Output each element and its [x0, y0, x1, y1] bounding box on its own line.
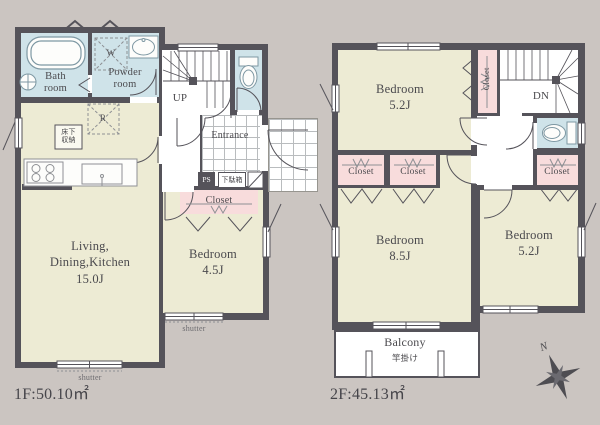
- shutter-label-ldk: shutter: [60, 373, 120, 382]
- room-bedroom-center-notch: [440, 155, 471, 190]
- balcony-label: Balcony: [360, 336, 450, 350]
- compass-icon: [527, 346, 589, 408]
- hall-2f: [477, 116, 533, 185]
- compass-north-label: N: [534, 339, 553, 356]
- bedroom-center-label: Bedroom8.5J: [355, 232, 445, 265]
- room-ldk: [21, 103, 159, 362]
- dn-label: DN: [526, 90, 556, 103]
- closet-north-label: Closet: [482, 54, 492, 104]
- bedroom-45-label: Bedroom4.5J: [173, 246, 253, 279]
- ps-label: PS: [198, 172, 215, 188]
- closet-b-label: Closet: [390, 167, 436, 178]
- floor2-area-label: 2F:45.13㎡: [330, 386, 480, 404]
- floorplan-canvas: Bathroom Powderroom UP Entrance PS 下駄箱 C…: [0, 0, 600, 425]
- room-toilet-2f: [537, 118, 578, 148]
- underfloor-storage-label: 床下収納: [56, 128, 81, 144]
- pole-hanger-label: 竿掛け: [360, 354, 450, 364]
- room-entrance: [200, 115, 262, 172]
- shutter-label-bedroom: shutter: [164, 324, 224, 333]
- powder-room-label: Powderroom: [95, 67, 155, 91]
- bathroom-label: Bathroom: [28, 71, 83, 95]
- stairs-2f: [500, 50, 578, 113]
- fridge-label: R: [95, 113, 111, 123]
- bedroom-north-label: Bedroom5.2J: [355, 81, 445, 114]
- room-toilet-1f: [235, 50, 262, 112]
- closet-1f-label: Closet: [184, 195, 254, 207]
- shoe-cabinet-label: 下駄箱: [218, 172, 246, 188]
- bedroom-east-label: Bedroom5.2J: [485, 227, 573, 260]
- ldk-label: Living,Dining,Kitchen15.0J: [30, 238, 150, 287]
- porch: [268, 118, 318, 192]
- washer-label: W: [103, 48, 119, 58]
- closet-a-label: Closet: [338, 167, 384, 178]
- floor1-area-label: 1F:50.10㎡: [14, 386, 164, 404]
- up-label: UP: [166, 92, 194, 105]
- closet-east-label: Closet: [536, 167, 578, 178]
- entrance-label: Entrance: [200, 130, 260, 142]
